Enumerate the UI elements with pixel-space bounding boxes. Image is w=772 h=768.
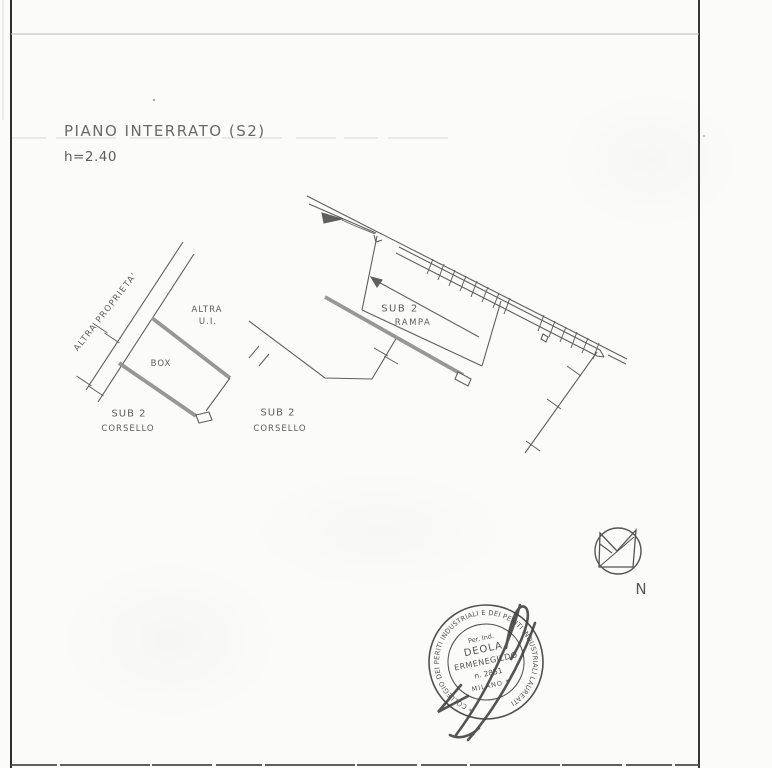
label-sub2-corsello-right-line1: SUB 2	[260, 408, 295, 419]
corsello-boundary	[249, 321, 398, 379]
label-sub2-corsello-left-line2: CORSELLO	[101, 424, 154, 434]
label-sub2-rampa-line1: SUB 2	[381, 304, 419, 315]
upper-boundary-line	[307, 196, 627, 359]
stamp-number-line: n. 2851	[473, 666, 503, 681]
label-sub2-rampa-line2: RAMPA	[395, 318, 432, 328]
label-sub2-corsello-right-line2: CORSELLO	[253, 424, 306, 434]
label-sub2-corsello-left-line1: SUB 2	[111, 409, 146, 420]
boundary-tick-marks	[249, 346, 398, 366]
label-altra-ui-line2: U.I.	[199, 317, 217, 327]
rampa-wall-left	[362, 236, 377, 310]
scan-speck	[153, 99, 155, 101]
compass-glyph	[599, 530, 636, 567]
boundary-tick-marks	[526, 366, 581, 451]
north-label: N	[635, 580, 646, 598]
height-note: h=2.40	[64, 149, 117, 165]
page-title: PIANO INTERRATO (S2)	[64, 122, 266, 140]
rampa-outline	[362, 235, 501, 366]
wall-foot	[455, 372, 471, 386]
scan-frame	[3, 0, 705, 768]
box-wall-upper	[152, 318, 230, 378]
rampa-wall-right	[482, 301, 501, 366]
rampa-top-notch	[374, 235, 382, 242]
retaining-wall-hatched	[396, 247, 626, 364]
stamp: * COLLEGIO DEI PERITI INDUSTRIALI E DEI …	[418, 594, 553, 740]
north-arrow	[595, 528, 641, 574]
box-door-notch	[196, 412, 212, 423]
box-unit	[119, 318, 230, 423]
plan-linework	[77, 196, 628, 453]
compass-glyph-lines	[599, 537, 634, 567]
wall-bump	[541, 334, 548, 342]
scanned-sheet: * COLLEGIO DEI PERITI INDUSTRIALI E DEI …	[0, 0, 772, 768]
label-altra-ui-line1: ALTRA	[192, 305, 223, 315]
plan-drawing: * COLLEGIO DEI PERITI INDUSTRIALI E DEI …	[0, 0, 772, 768]
label-box: BOX	[151, 359, 172, 369]
rampa-slope-arrowhead	[371, 277, 382, 287]
wall-end-jog	[597, 350, 626, 364]
scan-speck	[703, 135, 705, 137]
right-boundary-line	[525, 352, 597, 453]
box-wall-right	[206, 378, 230, 411]
